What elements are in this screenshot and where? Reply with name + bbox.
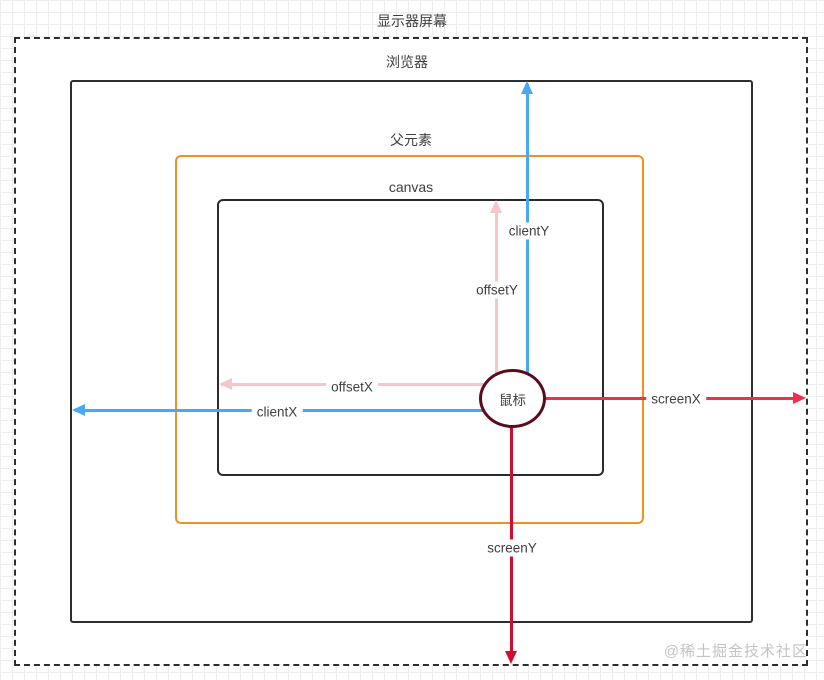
canvas-label: canvas xyxy=(389,179,433,195)
offsety-arrowhead-icon xyxy=(490,200,502,213)
watermark-text: @稀土掘金技术社区 xyxy=(664,640,808,661)
offsety-arrow-label: offsetY xyxy=(471,282,523,299)
offsetx-arrow-label: offsetX xyxy=(326,379,378,396)
clienty-arrow-label: clientY xyxy=(504,223,555,240)
screeny-arrowhead-icon xyxy=(505,651,517,664)
clientx-arrow-label: clientX xyxy=(252,404,303,421)
mouse-node-label: 鼠标 xyxy=(499,389,526,409)
clienty-arrowhead-icon xyxy=(521,81,533,94)
mouse-node: 鼠标 xyxy=(479,369,546,428)
browser-label: 浏览器 xyxy=(386,52,428,72)
screenx-arrowhead-icon xyxy=(793,392,806,404)
monitor-screen-label: 显示器屏幕 xyxy=(377,11,447,31)
coordinate-systems-diagram: 显示器屏幕 浏览器 父元素 canvas clientY offsetY off… xyxy=(0,0,824,680)
offsetx-arrowhead-icon xyxy=(219,378,232,390)
screenx-arrow-label: screenX xyxy=(646,391,706,408)
canvas-box xyxy=(217,199,604,476)
screeny-arrow-label: screenY xyxy=(482,540,542,557)
parent-element-label: 父元素 xyxy=(390,130,432,150)
clientx-arrowhead-icon xyxy=(72,404,85,416)
